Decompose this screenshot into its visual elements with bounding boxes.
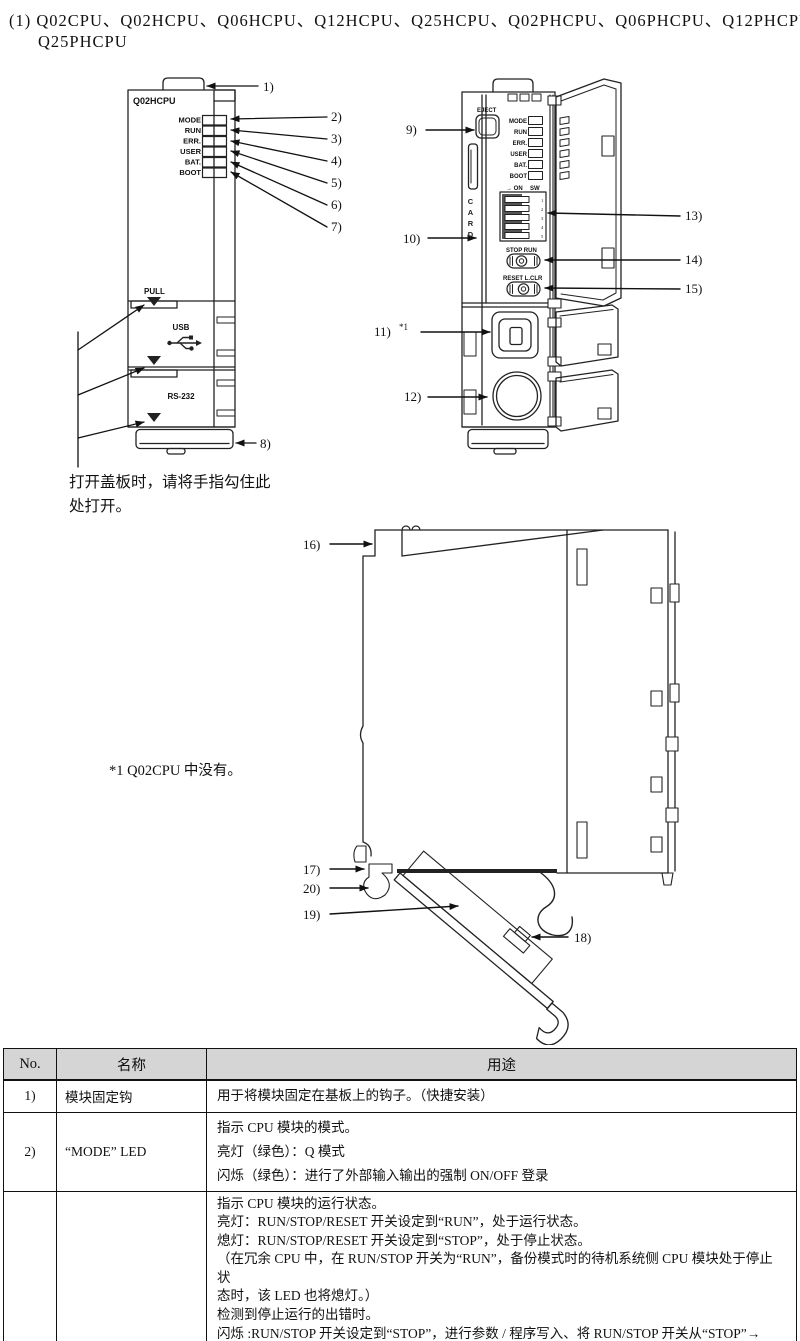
callout-8: 8)	[260, 436, 271, 451]
callout-16: 16)	[303, 537, 320, 552]
dip-sw-label: SW	[530, 186, 540, 192]
open-middle-cover-door	[556, 305, 618, 366]
callout-10: 10)	[403, 231, 420, 246]
dip-num-1: 1	[541, 198, 543, 203]
dip-num-5: 5	[541, 234, 544, 239]
callout-3: 3)	[331, 131, 342, 146]
row3-usage: 指示 CPU 模块的运行状态。 亮灯：RUN/STOP/RESET 开关设定到“…	[207, 1191, 797, 1341]
memory-card-slot	[469, 144, 478, 189]
cover-end-hook	[528, 1003, 575, 1045]
open-led-label-err: ERR.	[513, 141, 528, 147]
front-led-label-user: USER	[180, 147, 201, 156]
reset-switch	[507, 282, 540, 296]
front-callout-arrows	[207, 86, 327, 443]
table-row: 指示 CPU 模块的运行状态。 亮灯：RUN/STOP/RESET 开关设定到“…	[4, 1191, 797, 1341]
card-slot-label: CARD	[466, 197, 475, 241]
front-led-block: MODE RUN ERR. USER BAT. BOOT	[179, 116, 227, 178]
front-model-label: Q02HCPU	[133, 96, 176, 106]
open-led-label-boot: BOOT	[510, 174, 528, 180]
front-covers: PULL USB RS-232	[128, 287, 235, 422]
callout-1: 1)	[263, 79, 274, 94]
eject-label: EJECT	[477, 108, 497, 114]
front-led-label-boot: BOOT	[179, 168, 201, 177]
open-led-label-bat: BAT.	[514, 163, 527, 169]
row1-no: 1)	[4, 1080, 57, 1112]
callout-13: 13)	[685, 208, 702, 223]
cover-pull-arrow2-icon	[147, 413, 161, 422]
callout-14: 14)	[685, 252, 702, 267]
hardware-diagrams: Q02HCPU MODE RUN ERR. USER BAT. BOOT PUL…	[0, 0, 800, 1045]
usage-line: 用于将模块固定在基板上的钩子。（快捷安装）	[217, 1084, 786, 1108]
din-rail-hook-upper	[354, 846, 366, 862]
callout-19: 19)	[303, 907, 320, 922]
open-bottom-cover-door	[556, 370, 618, 431]
footnote-q02cpu: *1 Q02CPU 中没有。	[109, 759, 242, 780]
row2-name: “MODE” LED	[57, 1112, 207, 1191]
callout-12: 12)	[404, 389, 421, 404]
open-led-label-user: USER	[510, 152, 527, 158]
dip-switch-4	[505, 224, 529, 230]
usage-line: 亮灯（绿色）：Q 模式	[217, 1140, 786, 1164]
usage-line: 态时，该 LED 也将熄灯。）	[217, 1287, 786, 1306]
usage-line: 闪烁 :RUN/STOP 开关设定到“STOP”，进行参数 / 程序写入、将 R…	[217, 1325, 786, 1341]
stop-run-label: STOP RUN	[506, 248, 537, 254]
top-fixing-hook-2	[493, 79, 533, 92]
usage-line: 闪烁（绿色）：进行了外部输入输出的强制 ON/OFF 登录	[217, 1164, 786, 1188]
callout-17: 17)	[303, 862, 320, 877]
col-header-no: No.	[4, 1049, 57, 1081]
callout-20: 20)	[303, 881, 320, 896]
cover-pull-arrow-icon	[147, 356, 161, 365]
run-stop-switch	[507, 254, 540, 268]
dip-switch-2	[505, 206, 529, 212]
callout-11-footnote-mark: *1	[399, 322, 408, 332]
pull-label: PULL	[144, 287, 165, 296]
row3-no	[4, 1191, 57, 1341]
dip-switch-5	[505, 233, 529, 239]
callout-2: 2)	[331, 109, 342, 124]
dip-num-3: 3	[541, 216, 544, 221]
callout-4: 4)	[331, 153, 342, 168]
cover-note-line2: 处打开。	[69, 495, 271, 519]
callout-18: 18)	[574, 930, 591, 945]
cover-open-note: 打开盖板时，请将手指勾住此 处打开。	[69, 471, 271, 519]
table-header-row: No. 名称 用途	[4, 1049, 797, 1081]
manual-page: (1) Q02CPU、Q02HCPU、Q06HCPU、Q12HCPU、Q25HC…	[0, 0, 800, 1341]
col-header-usage: 用途	[207, 1049, 797, 1081]
callout-7: 7)	[331, 219, 342, 234]
side-view-module	[354, 526, 679, 899]
callout-6: 6)	[331, 197, 342, 212]
reset-lclr-label: RESET L.CLR	[503, 276, 543, 282]
usage-line: 检测到停止运行的出错时。	[217, 1306, 786, 1325]
row1-name: 模块固定钩	[57, 1080, 207, 1112]
usage-line: 亮灯：RUN/STOP/RESET 开关设定到“RUN”，处于运行状态。	[217, 1213, 786, 1232]
parts-description-table: No. 名称 用途 1) 模块固定钩 用于将模块固定在基板上的钩子。（快捷安装）…	[3, 1048, 797, 1341]
row1-usage: 用于将模块固定在基板上的钩子。（快捷安装）	[207, 1080, 797, 1112]
rs232-connector	[493, 372, 541, 420]
col-header-name: 名称	[57, 1049, 207, 1081]
open-top-cover-door	[556, 79, 621, 306]
usb-icon	[167, 336, 202, 351]
dip-switch-block: 1 2 3 4 5	[500, 192, 546, 241]
cover-spring	[538, 873, 572, 936]
dip-num-4: 4	[541, 225, 544, 230]
open-lower-section	[462, 303, 555, 454]
callout-15: 15)	[685, 281, 702, 296]
callout-11: 11)	[374, 324, 391, 339]
cover-note-line1: 打开盖板时，请将手指勾住此	[69, 471, 271, 495]
table-row: 2) “MODE” LED 指示 CPU 模块的模式。 亮灯（绿色）：Q 模式 …	[4, 1112, 797, 1191]
row2-usage: 指示 CPU 模块的模式。 亮灯（绿色）：Q 模式 闪烁（绿色）：进行了外部输入…	[207, 1112, 797, 1191]
eject-button	[476, 115, 499, 138]
front-led-label-err: ERR.	[183, 137, 201, 146]
usage-line: 指示 CPU 模块的模式。	[217, 1116, 786, 1140]
cover-open-pointer	[78, 305, 144, 467]
callout-5: 5)	[331, 175, 342, 190]
rs232-label: RS-232	[167, 392, 195, 401]
open-led-label-mode: MODE	[509, 119, 527, 125]
side-callout-arrows	[330, 544, 568, 937]
front-led-label-run: RUN	[185, 126, 201, 135]
dip-num-2: 2	[541, 207, 543, 212]
usage-line: （在冗余 CPU 中，在 RUN/STOP 开关为“RUN”，备份模式时的待机系…	[217, 1250, 786, 1287]
table-row: 1) 模块固定钩 用于将模块固定在基板上的钩子。（快捷安装）	[4, 1080, 797, 1112]
top-fixing-hook	[163, 78, 204, 90]
front-base	[128, 427, 235, 454]
open-led-block: MODE RUN ERR. USER BAT. BOOT	[509, 117, 543, 181]
dip-switch-3	[505, 215, 529, 221]
row2-no: 2)	[4, 1112, 57, 1191]
dip-switch-1	[505, 197, 529, 203]
din-rail-latch	[364, 864, 392, 899]
open-led-label-run: RUN	[514, 130, 527, 136]
front-led-label-bat: BAT.	[185, 158, 201, 167]
usb-label: USB	[173, 323, 190, 332]
usage-line: 指示 CPU 模块的运行状态。	[217, 1195, 786, 1214]
side-open-bottom-cover	[375, 845, 600, 1045]
row3-name	[57, 1191, 207, 1341]
front-led-label-mode: MODE	[179, 116, 202, 125]
callout-9: 9)	[406, 122, 417, 137]
dip-on-label: → ON	[506, 186, 523, 192]
usage-line: 熄灯：RUN/STOP/RESET 开关设定到“STOP”，处于停止状态。	[217, 1232, 786, 1251]
front-view-module-outline	[128, 78, 235, 427]
